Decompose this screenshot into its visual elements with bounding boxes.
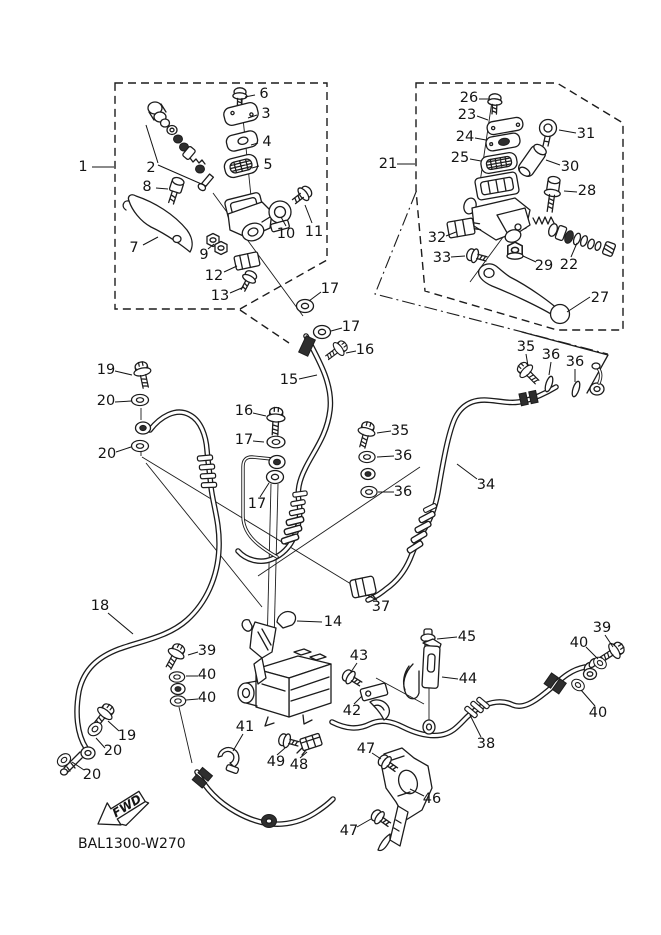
part-label-20: 20 <box>83 767 101 783</box>
part-13-screw <box>237 268 259 293</box>
part-label-48: 48 <box>290 757 308 773</box>
leader-line-31 <box>559 130 576 133</box>
part-label-19: 19 <box>97 362 115 378</box>
part-label-17: 17 <box>235 432 253 448</box>
part-label-30: 30 <box>561 159 579 175</box>
leader-line-17 <box>253 441 264 442</box>
part-24-diaphragm-plate <box>485 132 521 152</box>
part-label-5: 5 <box>263 157 272 173</box>
part-label-39: 39 <box>198 643 216 659</box>
part-label-35: 35 <box>517 339 535 355</box>
leader-line-34 <box>457 464 477 479</box>
leader-line-13 <box>230 287 244 293</box>
part-23-reservoir-cap <box>486 116 524 135</box>
leader-line-36 <box>377 456 394 457</box>
banjo-39-40-left <box>161 641 188 706</box>
part-label-40: 40 <box>589 705 607 721</box>
leader-line-8 <box>156 188 168 189</box>
exploded-parts-diagram: FWD BAL1300-W270 12345678910111213171716… <box>0 0 661 935</box>
part-label-32: 32 <box>428 230 446 246</box>
leader-line-47 <box>357 819 371 827</box>
part-label-20: 20 <box>98 446 116 462</box>
part-label-42: 42 <box>343 703 361 719</box>
leader-line-30 <box>546 160 560 165</box>
part-label-43: 43 <box>350 648 368 664</box>
front-master-cylinder-body <box>224 192 272 244</box>
leader-line-14 <box>297 621 322 622</box>
part-label-40: 40 <box>198 667 216 683</box>
part-label-12: 12 <box>205 268 223 284</box>
part-33-screw <box>465 247 488 266</box>
part-label-35: 35 <box>391 423 409 439</box>
part-label-38: 38 <box>477 736 495 752</box>
part-label-22: 22 <box>560 257 578 273</box>
fwd-label: FWD <box>110 792 144 821</box>
banjo-35-36-left <box>354 420 377 498</box>
part-label-9: 9 <box>199 247 208 263</box>
part-label-13: 13 <box>211 288 229 304</box>
part-label-41: 41 <box>236 719 254 735</box>
part-44-bracket <box>404 639 441 734</box>
brake-hose-15 <box>238 336 330 561</box>
part-label-19: 19 <box>118 728 136 744</box>
part-label-36: 36 <box>394 484 412 500</box>
abs-hydraulic-unit <box>238 649 331 726</box>
leader-line-41 <box>233 734 243 751</box>
leader-line-20 <box>115 401 132 402</box>
leader-line-23 <box>477 116 488 120</box>
part-label-24: 24 <box>456 129 474 145</box>
leader-line-2 <box>146 125 158 163</box>
leader-line-40 <box>581 690 595 706</box>
part-label-17: 17 <box>342 319 360 335</box>
leader-line-45 <box>437 637 457 639</box>
diagram-code: BAL1300-W270 <box>78 836 186 852</box>
part-label-7: 7 <box>129 240 138 256</box>
part-label-46: 46 <box>423 791 441 807</box>
leader-line-11 <box>305 205 312 223</box>
part-22-piston-kit <box>533 217 616 257</box>
leader-line-22 <box>571 243 577 257</box>
part-label-16: 16 <box>356 342 374 358</box>
leader-line-17 <box>260 483 269 497</box>
part-label-23: 23 <box>458 107 476 123</box>
leader-line-25 <box>470 159 481 161</box>
part-label-16: 16 <box>235 403 253 419</box>
part-label-6: 6 <box>259 86 268 102</box>
part-label-14: 14 <box>324 614 342 630</box>
part-41-clamp <box>218 748 239 774</box>
part-label-36: 36 <box>394 448 412 464</box>
part-label-1: 1 <box>78 159 87 175</box>
leader-line-39 <box>188 652 198 655</box>
leader-line-27 <box>567 297 590 312</box>
part-label-29: 29 <box>535 258 553 274</box>
leader-line-40 <box>186 699 198 700</box>
leader-line-24 <box>475 138 486 140</box>
part-label-18: 18 <box>91 598 109 614</box>
part-3-reservoir-cap <box>222 101 259 127</box>
part-29-nut <box>507 242 523 259</box>
part-9-nuts <box>207 234 227 255</box>
banjo-16-17-mid <box>266 407 285 483</box>
part-label-8: 8 <box>142 179 151 195</box>
parts-diagram-page: FWD BAL1300-W270 12345678910111213171716… <box>0 0 661 935</box>
part-label-26: 26 <box>460 90 478 106</box>
part-label-44: 44 <box>459 671 477 687</box>
part-label-49: 49 <box>267 754 285 770</box>
part-label-15: 15 <box>280 372 298 388</box>
leader-line-15 <box>299 375 317 379</box>
leader-line-18 <box>108 613 133 634</box>
leader-line-43 <box>351 663 357 672</box>
part-label-21: 21 <box>379 156 397 172</box>
fwd-arrow: FWD <box>91 784 152 837</box>
part-48-clip <box>297 733 322 755</box>
part-25-diaphragm <box>480 152 518 175</box>
leader-line-12 <box>224 266 237 272</box>
part-label-27: 27 <box>591 290 609 306</box>
part-label-2: 2 <box>146 160 155 176</box>
part-26-screw <box>487 93 502 114</box>
leader-line-33 <box>451 256 465 257</box>
part-label-34: 34 <box>477 477 495 493</box>
part-label-20: 20 <box>97 393 115 409</box>
banjo-19-20-upper <box>132 360 155 456</box>
leader-line-35 <box>377 431 391 433</box>
part-8-pivot-bolt <box>165 176 185 205</box>
part-label-47: 47 <box>340 823 358 839</box>
part-label-3: 3 <box>261 106 270 122</box>
part-27-brake-lever <box>479 264 570 324</box>
part-30-holder-clamp <box>516 142 549 179</box>
leader-line-38 <box>470 715 481 737</box>
part-label-36: 36 <box>542 347 560 363</box>
brake-hose-18 <box>61 412 220 775</box>
part-label-31: 31 <box>577 126 595 142</box>
part-label-39: 39 <box>593 620 611 636</box>
leader-line-19 <box>115 371 132 375</box>
part-4-diaphragm-plate <box>225 129 259 152</box>
leader-line-20 <box>116 447 131 452</box>
part-label-10: 10 <box>277 226 295 242</box>
part-28-bolt <box>542 175 563 212</box>
leader-line-17 <box>309 292 321 301</box>
leader-line-28 <box>564 191 577 192</box>
front-master-cylinder-assembly <box>123 88 315 294</box>
leader-line-36 <box>549 362 551 375</box>
leader-line-7 <box>143 237 158 245</box>
leader-line-16 <box>253 413 266 416</box>
leader-line-17 <box>331 328 342 331</box>
part-label-40: 40 <box>570 635 588 651</box>
brake-hose-bottom <box>192 767 333 827</box>
part-label-37: 37 <box>372 599 390 615</box>
leader-line-16 <box>346 351 356 353</box>
part-12-brake-switch <box>234 252 260 271</box>
part-5-diaphragm <box>223 153 260 179</box>
part-42-bracket <box>360 683 390 720</box>
part-label-20: 20 <box>104 743 122 759</box>
part-31-bolt <box>540 120 557 147</box>
part-label-25: 25 <box>451 150 469 166</box>
part-label-47: 47 <box>357 741 375 757</box>
part-label-11: 11 <box>305 224 323 240</box>
part-label-36: 36 <box>566 354 584 370</box>
part-label-17: 17 <box>321 281 339 297</box>
part-label-4: 4 <box>262 134 271 150</box>
part-label-45: 45 <box>458 629 476 645</box>
part-11-bolt <box>289 183 314 207</box>
part-label-40: 40 <box>198 690 216 706</box>
part-label-17: 17 <box>248 496 266 512</box>
part-49-bolt <box>277 732 300 751</box>
part-label-28: 28 <box>578 183 596 199</box>
leader-line-44 <box>442 677 458 679</box>
part-label-33: 33 <box>433 250 451 266</box>
